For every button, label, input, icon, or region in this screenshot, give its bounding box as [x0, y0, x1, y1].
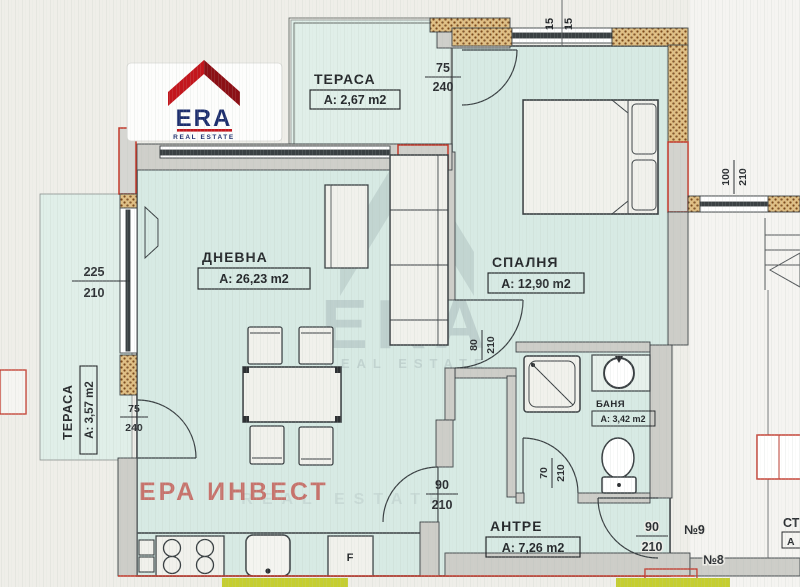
scan-texture — [0, 0, 800, 587]
floorplan: ERA REAL ESTATE REAL ESTATE — [0, 0, 800, 587]
floorplan-svg: ERA REAL ESTATE REAL ESTATE — [0, 0, 800, 587]
